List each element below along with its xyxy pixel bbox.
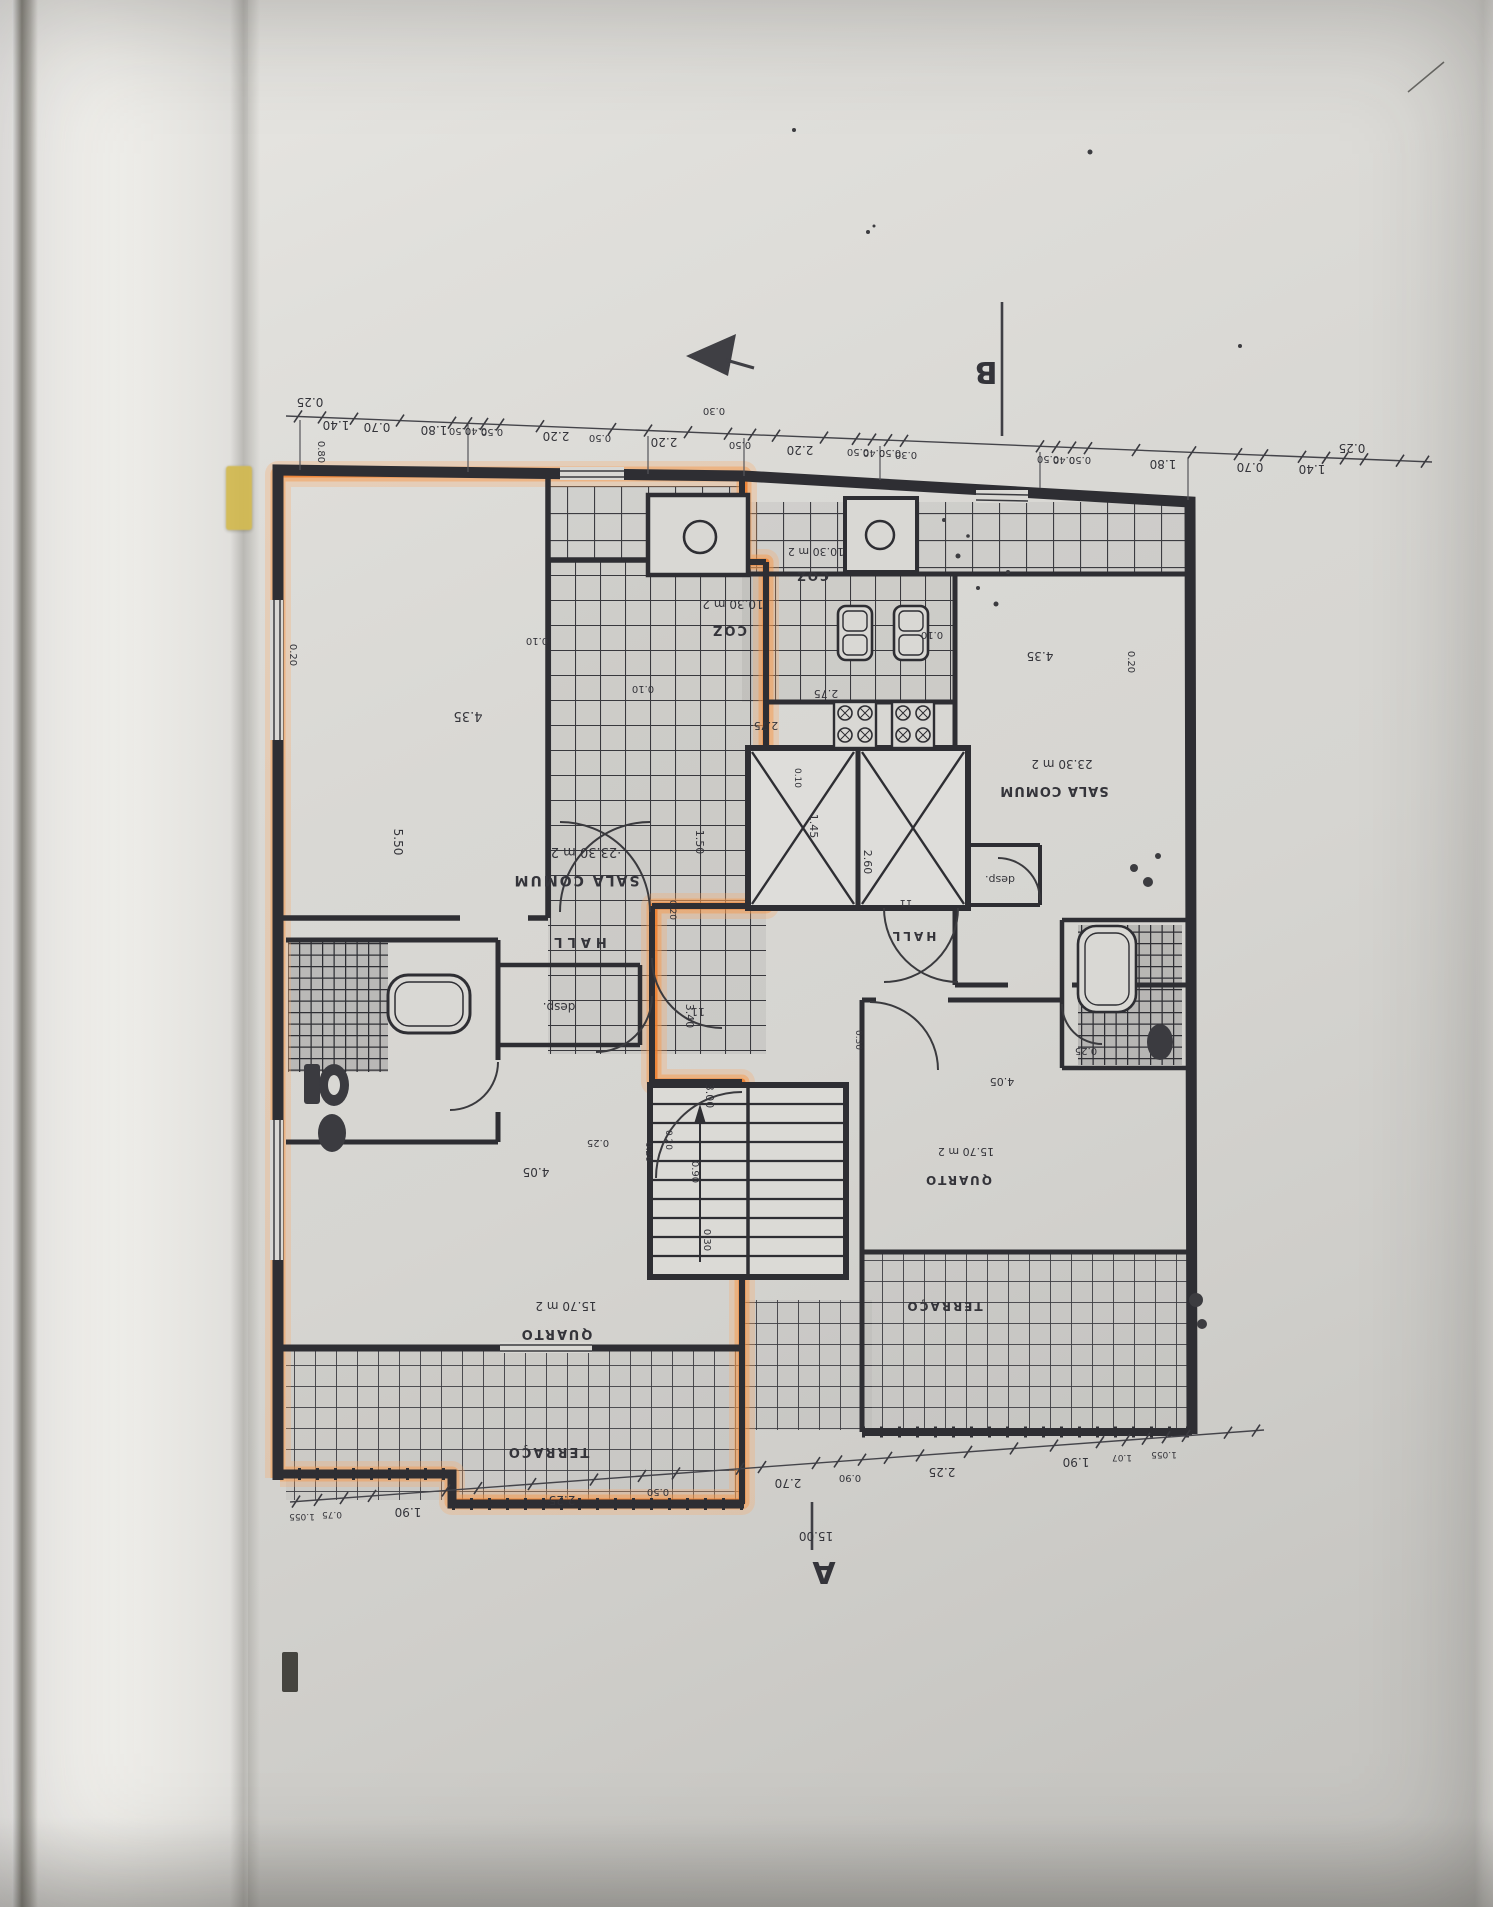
dim-label: 0.50: [647, 1486, 669, 1497]
room-label: SALA COMUM: [999, 783, 1108, 798]
dim-label: 0.20: [667, 900, 677, 920]
dim-label: 0.80: [315, 441, 326, 463]
dim-label: 1.40: [323, 418, 350, 432]
bathroom-floor-left: [288, 942, 388, 1072]
room-label: TERRAÇO: [507, 1444, 589, 1459]
terrace-floor-right: [862, 1252, 1192, 1430]
dim-label: 1.055: [1151, 1449, 1177, 1459]
section-marker-a: A: [812, 1554, 836, 1589]
dim-label: 0.20: [287, 644, 298, 666]
room-label: HALL: [890, 929, 937, 943]
dim-label: 0.90: [689, 1161, 700, 1183]
wash-tank-niche-left: [648, 495, 748, 575]
dim-label: 0.10: [632, 683, 654, 694]
dim-label: 0.25: [587, 1137, 609, 1148]
dim-label: 3.00: [703, 1084, 716, 1109]
dim-label: 2.20: [543, 429, 570, 443]
dim-label: 0.50: [1069, 454, 1091, 465]
dim-label: 2.75: [754, 719, 779, 732]
photographed-floor-plan-page: 0.251.400.701.800.500.400.502.200.502.20…: [0, 0, 1493, 1907]
dim-label: 1.07: [1112, 1452, 1132, 1462]
dim-label: 2.25: [549, 1493, 576, 1507]
dim-label: 0.50: [729, 439, 751, 450]
dim-label: 0.20: [663, 1130, 673, 1150]
dim-label: 2.70: [775, 1476, 802, 1490]
dim-label: 1.90: [395, 1505, 422, 1519]
dim-label: 1.40: [1299, 462, 1326, 476]
dim-label: 1.055: [289, 1511, 315, 1521]
room-area: 15.70 m 2: [535, 1299, 596, 1313]
dim-label: 0.70: [1237, 460, 1264, 474]
dim-label: 0.10: [792, 768, 802, 788]
toilet-tank-left: [304, 1064, 320, 1104]
section-marker-b: B: [975, 354, 998, 389]
overall-dimension: 15.00: [799, 1529, 833, 1543]
room-area: 23.30 m 2: [1031, 757, 1092, 771]
dim-label: 0.30: [703, 405, 725, 416]
bidet-left: [318, 1114, 346, 1152]
dim-label: 1.80: [421, 423, 448, 437]
door-tag: 11: [900, 897, 913, 908]
dim-label: 1.50: [693, 830, 706, 855]
dim-label: 0.20: [643, 1142, 653, 1162]
floor-plan-drawing: 0.251.400.701.800.500.400.502.200.502.20…: [0, 0, 1493, 1907]
dim-label: 0.10: [526, 635, 548, 646]
bottom-page-shadow: [0, 1817, 1493, 1907]
dim-label: 2.20: [787, 443, 814, 457]
dim-label: 2.75: [814, 687, 839, 700]
dim-label: 4.05: [523, 1165, 550, 1179]
room-label: TERRAÇO: [905, 1299, 982, 1313]
room-area: ·23.30 m 2: [551, 844, 622, 859]
dim-label: 0.50: [481, 426, 503, 437]
room-label: SALA COMUM: [513, 872, 640, 888]
dim-label: 0.25: [1339, 441, 1366, 455]
dim-label: 0.10: [921, 629, 943, 640]
service-balcony-right: [742, 502, 1185, 572]
room-area: 10.30 m 2: [788, 545, 844, 558]
dim-label: 0.25: [297, 395, 324, 409]
dim-label: 4.35: [454, 708, 483, 723]
wash-tank-niche-right: [845, 498, 917, 572]
dim-label: 1.80: [1150, 457, 1177, 471]
dim-label: 0.70: [364, 420, 391, 434]
page-edge-mark: [282, 1652, 298, 1692]
dim-label: 4.05: [990, 1075, 1015, 1088]
dim-label: 0.75: [322, 1509, 342, 1519]
room-label: COZ: [711, 622, 747, 637]
bathtub-left: [388, 975, 470, 1033]
dim-label: 0.30: [701, 1229, 712, 1251]
dim-label: 4.35: [1027, 649, 1054, 663]
north-arrow-icon: [686, 334, 736, 376]
dim-label: 2.25: [929, 1465, 956, 1479]
terrace-floor-center: [742, 1300, 872, 1430]
room-label: COZ: [795, 569, 829, 583]
room-label: desp.: [985, 873, 1015, 886]
dim-label: 0.50: [589, 432, 611, 443]
dim-label: 0.25: [1075, 1045, 1097, 1056]
room-label: QUARTO: [924, 1173, 992, 1187]
door-tag: 11: [691, 1005, 705, 1018]
dim-label: 0.20: [1125, 651, 1136, 673]
room-label: HALL: [549, 934, 607, 949]
stove-right: [892, 702, 934, 748]
dim-label: 0.30: [853, 1030, 863, 1050]
dim-label: 0.30: [895, 449, 917, 460]
dim-label: 0.90: [839, 1472, 861, 1483]
dim-label: 5.50: [391, 829, 405, 856]
room-label: desp.: [543, 1000, 576, 1014]
toilet-right: [1147, 1024, 1173, 1060]
dim-label: 2.60: [861, 850, 874, 875]
room-area: 10.30 m 2: [702, 597, 763, 611]
room-label: QUARTO: [520, 1326, 593, 1341]
dim-label: 1.45: [807, 814, 820, 839]
stove-left: [834, 702, 876, 748]
dim-label: 2.20: [651, 435, 678, 449]
dim-label: 1.90: [1063, 1455, 1090, 1469]
room-area: 15.70 m 2: [938, 1145, 994, 1158]
